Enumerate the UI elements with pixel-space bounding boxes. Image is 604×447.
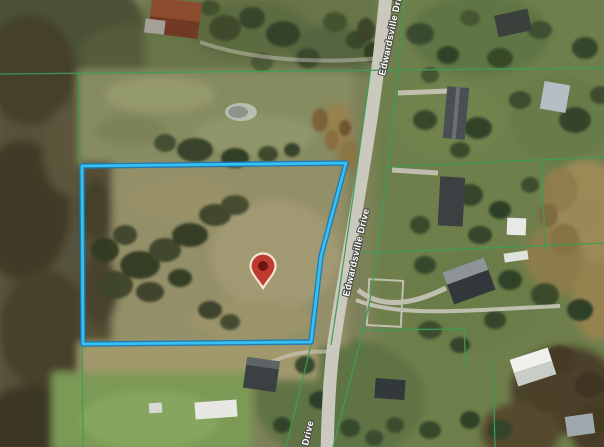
- building-barn-rust: [144, 0, 202, 39]
- satellite-map: Edwardsville Drive Edwardsville Drive Dr…: [0, 0, 604, 447]
- building-house: [374, 378, 405, 400]
- pond: [225, 103, 257, 121]
- building-shed: [507, 218, 527, 236]
- building-house: [243, 357, 280, 392]
- building-trailer: [565, 413, 596, 437]
- building-shed: [540, 81, 570, 113]
- map-viewport[interactable]: Edwardsville Drive Edwardsville Drive Dr…: [0, 0, 604, 447]
- building-shed: [149, 403, 163, 414]
- building-house: [438, 176, 466, 226]
- building-house: [443, 86, 469, 140]
- building-shed: [194, 400, 237, 420]
- pin-ring: [258, 261, 268, 271]
